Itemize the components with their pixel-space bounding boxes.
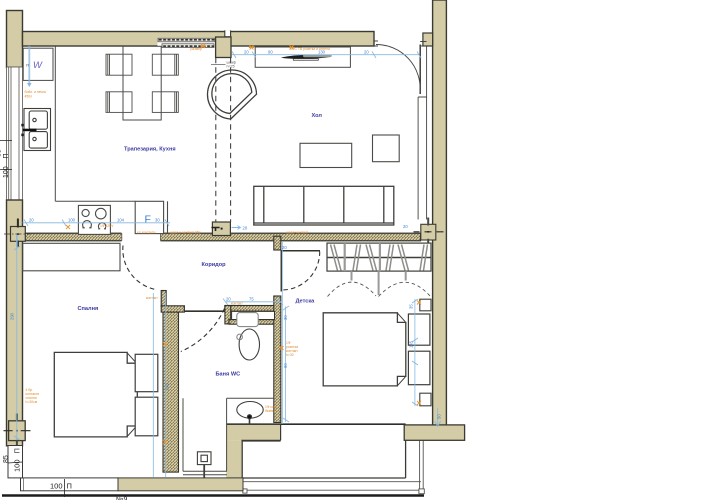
svg-text:50: 50 xyxy=(437,414,442,419)
svg-text:75: 75 xyxy=(249,296,254,301)
svg-text:h=25: h=25 xyxy=(227,65,235,69)
svg-text:щора и контакт 2бр: щора и контакт 2бр xyxy=(170,230,201,234)
svg-text:30: 30 xyxy=(283,315,288,320)
svg-text:П: П xyxy=(67,481,72,490)
svg-text:35: 35 xyxy=(409,304,414,309)
svg-text:h=30: h=30 xyxy=(286,353,294,357)
svg-text:щора+контакт: щора+контакт xyxy=(286,230,309,234)
svg-text:1ФС ТВ розетка и антена: 1ФС ТВ розетка и антена xyxy=(290,47,330,51)
svg-text:размер: размер xyxy=(191,47,203,51)
svg-text:Баня WC: Баня WC xyxy=(216,372,241,378)
svg-text:85: 85 xyxy=(3,455,10,463)
svg-text:90: 90 xyxy=(268,50,273,55)
svg-text:№9: №9 xyxy=(116,497,128,500)
svg-text:100: 100 xyxy=(68,218,76,223)
svg-text:Детска: Детска xyxy=(296,299,316,305)
svg-text:1Ф 220V: 1Ф 220V xyxy=(100,224,114,228)
svg-text:20: 20 xyxy=(403,224,408,229)
svg-text:450л: 450л xyxy=(25,94,33,98)
svg-text:145: 145 xyxy=(409,340,414,348)
svg-text:240: 240 xyxy=(165,382,170,390)
svg-text:Коридор: Коридор xyxy=(202,262,227,268)
svg-text:85: 85 xyxy=(0,149,3,157)
svg-text:20: 20 xyxy=(29,218,34,223)
svg-text:20: 20 xyxy=(282,245,287,250)
svg-text:100: 100 xyxy=(3,166,10,178)
svg-text:ел.контакти: ел.контакти xyxy=(137,230,155,234)
svg-text:контакт: контакт xyxy=(146,296,158,300)
svg-text:h=30см: h=30см xyxy=(26,400,38,404)
svg-text:W: W xyxy=(33,60,43,71)
svg-text:Хол: Хол xyxy=(312,113,323,119)
svg-text:Спалня: Спалня xyxy=(78,306,99,312)
svg-text:контакт: контакт xyxy=(231,302,243,306)
svg-text:П: П xyxy=(3,153,10,158)
svg-text:290: 290 xyxy=(10,312,15,320)
svg-text:П: П xyxy=(13,448,22,453)
svg-text:100: 100 xyxy=(13,459,22,472)
svg-text:100: 100 xyxy=(50,481,63,490)
svg-text:20: 20 xyxy=(244,50,249,55)
svg-text:90: 90 xyxy=(283,363,288,368)
svg-text:20: 20 xyxy=(364,50,369,55)
svg-text:Watter: Watter xyxy=(265,409,276,413)
svg-text:30: 30 xyxy=(155,218,160,223)
svg-text:п: п xyxy=(26,63,28,68)
svg-text:20: 20 xyxy=(243,226,248,231)
svg-text:Трапезария, Кухня: Трапезария, Кухня xyxy=(124,147,176,153)
svg-text:104: 104 xyxy=(117,218,125,223)
svg-text:F: F xyxy=(145,214,151,226)
